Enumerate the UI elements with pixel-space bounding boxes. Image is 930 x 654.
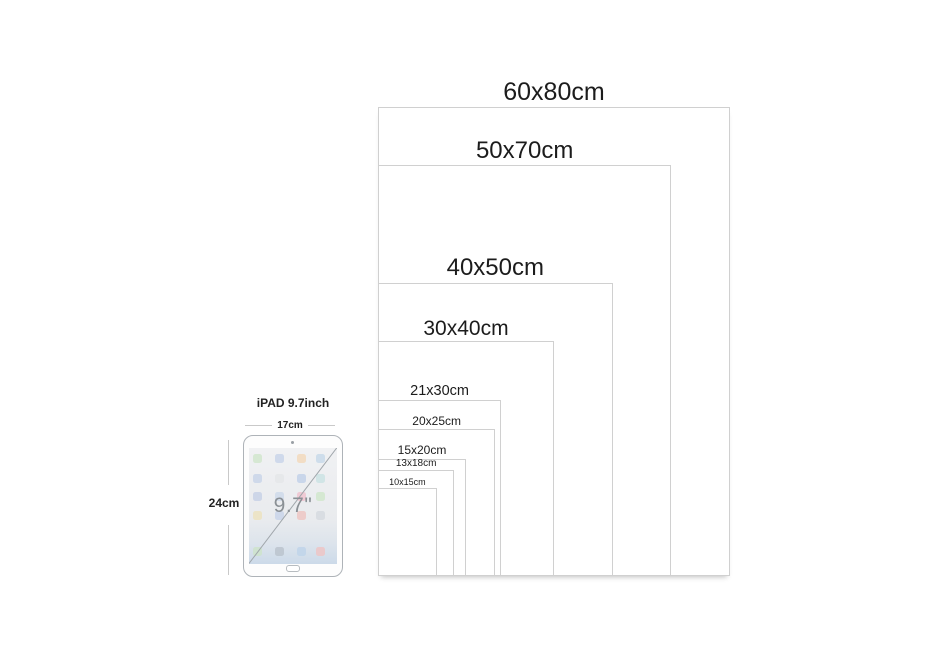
ipad-title: iPAD 9.7inch bbox=[243, 396, 343, 410]
ipad-height-dimension-line-top bbox=[228, 440, 229, 485]
size-label-10x15cm: 10x15cm bbox=[379, 477, 436, 487]
camera-icon bbox=[291, 441, 294, 444]
ipad-screen: 9.7" bbox=[249, 448, 337, 564]
size-label-13x18cm: 13x18cm bbox=[379, 458, 453, 469]
size-comparison-diagram: 60x80cm50x70cm40x50cm30x40cm21x30cm20x25… bbox=[0, 0, 930, 654]
home-button-icon bbox=[286, 565, 300, 572]
size-label-30x40cm: 30x40cm bbox=[379, 317, 553, 341]
ipad-device: 9.7" bbox=[243, 435, 343, 577]
size-label-15x20cm: 15x20cm bbox=[379, 444, 465, 457]
ipad-screen-size-label: 9.7" bbox=[249, 448, 337, 564]
dimension-line-right bbox=[308, 425, 335, 426]
dimension-line-left bbox=[245, 425, 272, 426]
size-label-60x80cm: 60x80cm bbox=[379, 78, 729, 106]
ipad-width-dimension: 17cm bbox=[245, 419, 335, 431]
size-label-21x30cm: 21x30cm bbox=[379, 383, 500, 399]
size-frame-10x15cm: 10x15cm bbox=[378, 488, 437, 576]
ipad-width-label: 17cm bbox=[277, 420, 303, 431]
size-label-50x70cm: 50x70cm bbox=[379, 138, 670, 165]
size-label-20x25cm: 20x25cm bbox=[379, 415, 494, 428]
size-label-40x50cm: 40x50cm bbox=[379, 255, 612, 282]
ipad-height-dimension-line-bottom bbox=[228, 525, 229, 575]
